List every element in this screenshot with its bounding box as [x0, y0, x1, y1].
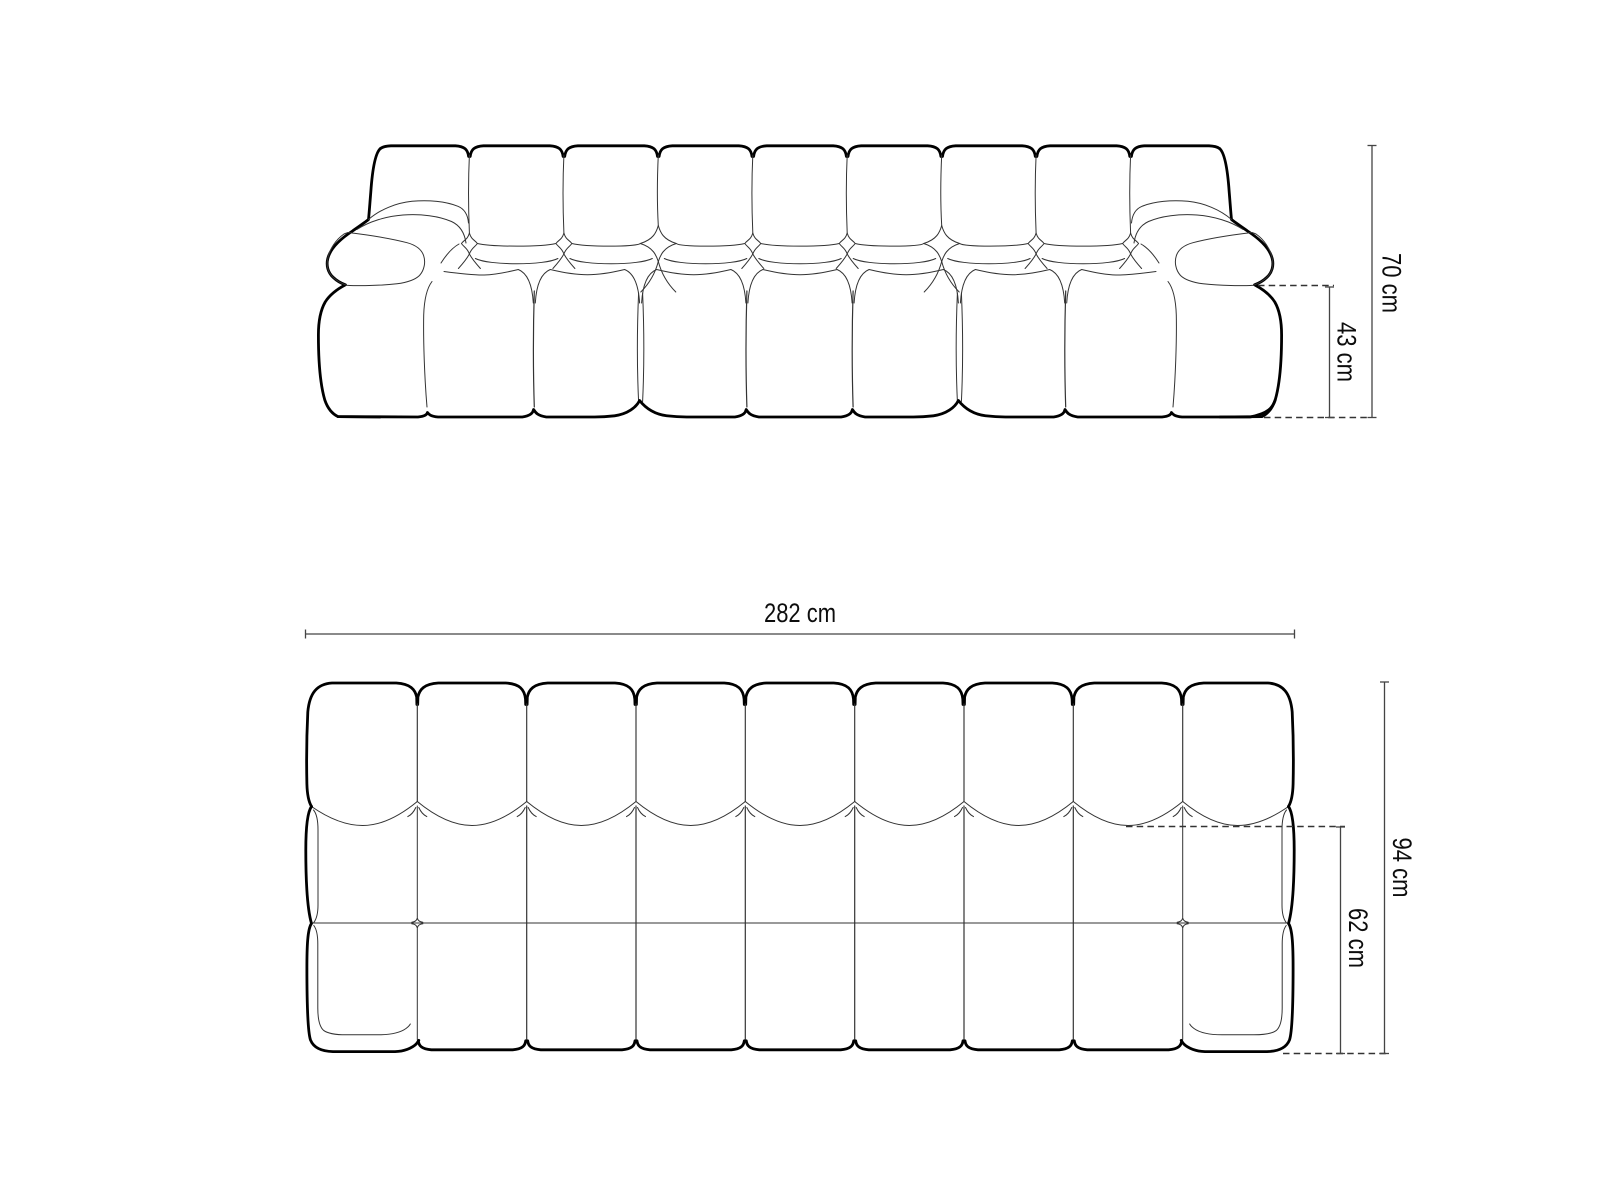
svg-text:94 cm: 94 cm: [1387, 838, 1417, 898]
svg-text:43 cm: 43 cm: [1332, 322, 1362, 382]
svg-text:62 cm: 62 cm: [1343, 908, 1373, 968]
svg-text:70 cm: 70 cm: [1377, 253, 1407, 313]
svg-text:282 cm: 282 cm: [764, 598, 836, 628]
